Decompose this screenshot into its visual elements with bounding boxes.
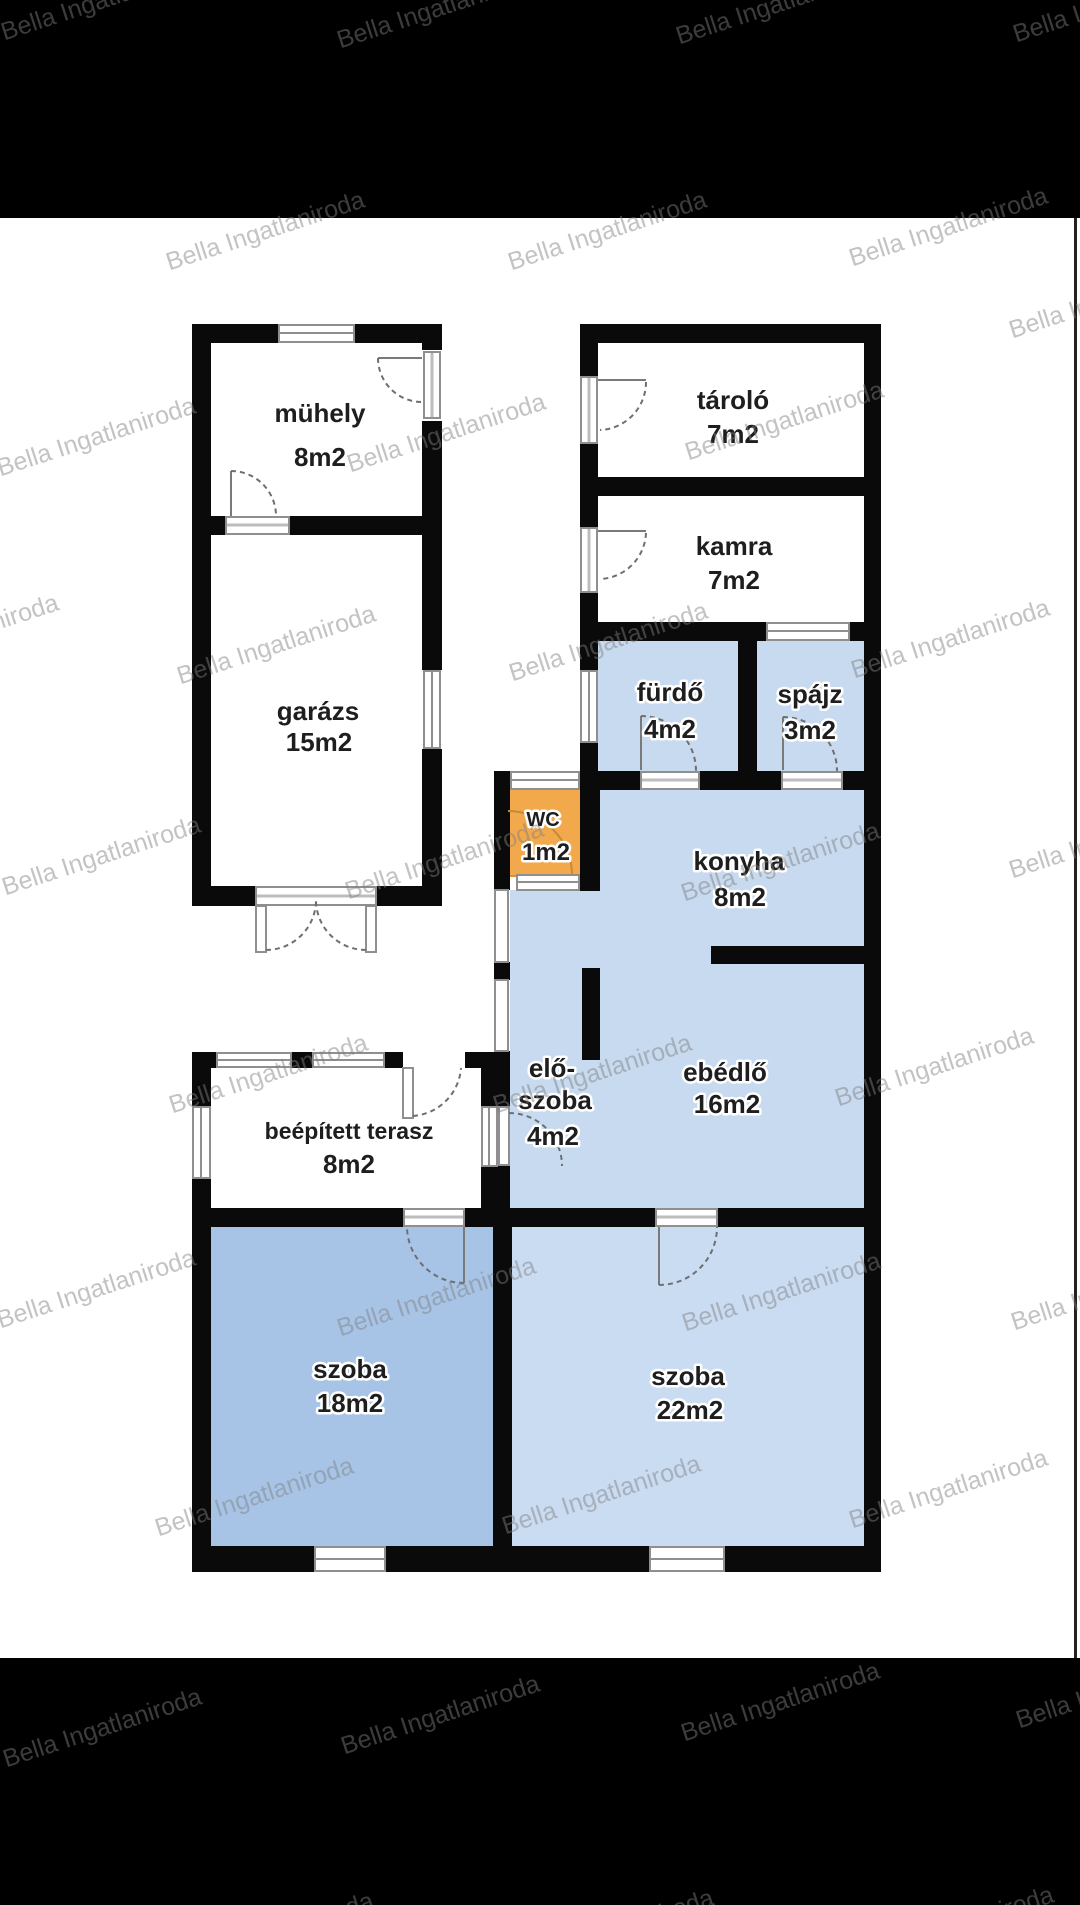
svg-text:spájz: spájz [777, 679, 842, 709]
svg-text:18m2: 18m2 [317, 1388, 384, 1418]
svg-text:4m2: 4m2 [644, 714, 696, 744]
svg-text:kamra: kamra [696, 531, 773, 561]
svg-text:16m2: 16m2 [694, 1089, 761, 1119]
svg-text:szoba: szoba [651, 1361, 725, 1391]
svg-text:mühely: mühely [274, 398, 366, 428]
svg-text:8m2: 8m2 [294, 442, 346, 472]
svg-text:beépített terasz: beépített terasz [265, 1118, 434, 1144]
svg-text:8m2: 8m2 [323, 1149, 375, 1179]
svg-text:fürdő: fürdő [637, 677, 703, 707]
svg-text:garázs: garázs [277, 696, 359, 726]
svg-text:tároló: tároló [697, 385, 769, 415]
svg-text:3m2: 3m2 [784, 715, 836, 745]
svg-text:szoba: szoba [313, 1354, 387, 1384]
svg-text:15m2: 15m2 [286, 727, 353, 757]
svg-text:7m2: 7m2 [708, 565, 760, 595]
svg-text:4m2: 4m2 [527, 1121, 579, 1151]
svg-text:22m2: 22m2 [657, 1395, 724, 1425]
svg-text:ebédlő: ebédlő [683, 1057, 767, 1087]
